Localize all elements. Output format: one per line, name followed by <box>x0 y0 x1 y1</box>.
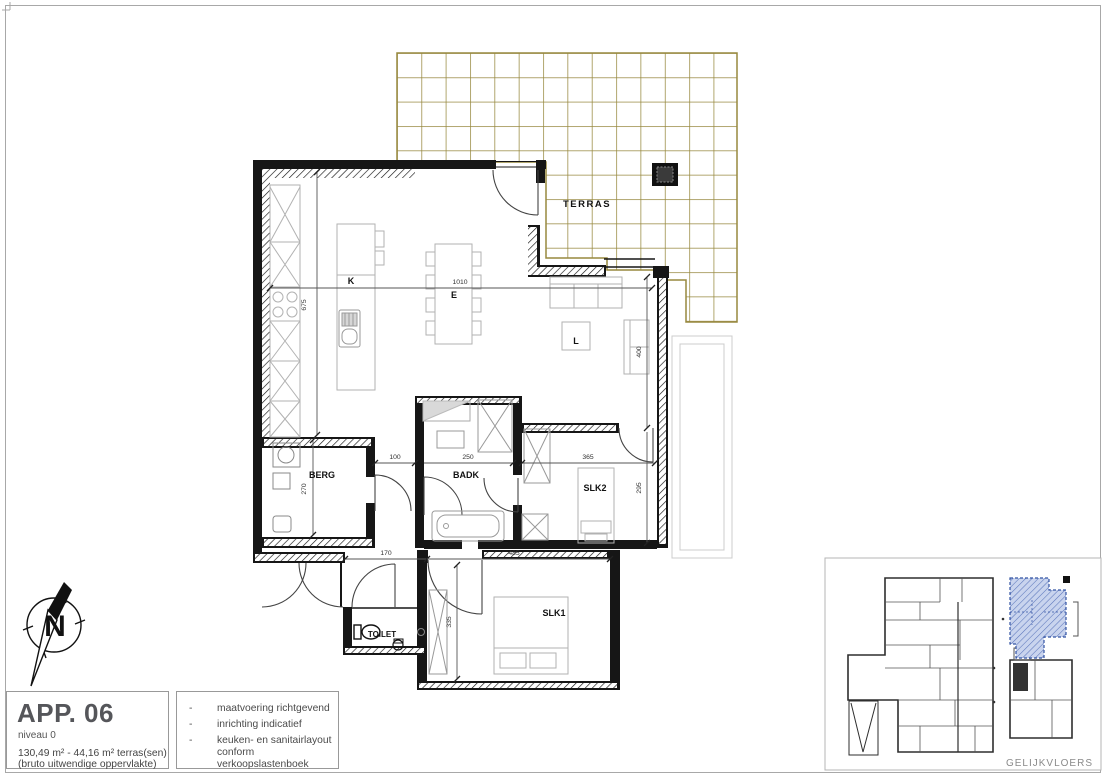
dim-living-right: 400 <box>636 346 643 358</box>
drawing-sheet: TERRAS <box>0 0 1106 779</box>
slk1-door <box>428 560 482 614</box>
toilet-door <box>352 564 395 607</box>
room-label-living: L <box>573 336 579 346</box>
note-item: - keuken- en sanitairlayout conform verk… <box>189 735 338 771</box>
room-label-terrace: TERRAS <box>563 199 611 210</box>
dim-bedroom2-right: 295 <box>636 482 643 494</box>
north-label: N <box>44 610 66 643</box>
badk-door <box>424 477 462 515</box>
neighbour-outline <box>672 336 732 558</box>
dim-living-width: 1010 <box>452 279 467 286</box>
dim-hall-width: 100 <box>389 454 401 461</box>
floor-plan-svg: TERRAS <box>0 0 1106 779</box>
apartment-title: APP. 06 <box>17 698 168 729</box>
notes-block: - maatvoering richtgevend - inrichting i… <box>176 691 339 769</box>
dim-storage-height: 270 <box>301 483 308 495</box>
terrace-tiles <box>397 53 737 322</box>
note-item: - maatvoering richtgevend <box>189 703 338 715</box>
room-label-bedroom1: SLK1 <box>542 608 565 618</box>
level-label: niveau 0 <box>18 730 168 741</box>
room-label-bedroom2: SLK2 <box>583 483 606 493</box>
dim-bedroom1-height: 335 <box>446 616 453 628</box>
dim-entry-width: 170 <box>380 550 392 557</box>
title-block: APP. 06 niveau 0 130,49 m² - 44,16 m² te… <box>6 691 169 769</box>
room-label-toilet: TOILET <box>368 630 396 639</box>
room-label-kitchen: K <box>348 276 355 286</box>
north-arrow: N <box>23 582 85 686</box>
room-label-bathroom: BADK <box>453 470 479 480</box>
berg-door <box>375 475 411 511</box>
keyplan-caption: GELIJKVLOERS <box>1006 758 1093 769</box>
dim-bathroom-width: 250 <box>462 454 474 461</box>
dim-kitchen-height: 675 <box>301 299 308 311</box>
room-label-storage: BERG <box>309 470 335 480</box>
terrace-door <box>493 170 538 215</box>
note-item: - inrichting indicatief <box>189 719 338 731</box>
area-line: 130,49 m² - 44,16 m² terras(sen) <box>18 748 168 759</box>
dim-bedroom2-width: 365 <box>582 454 594 461</box>
room-label-dining: E <box>451 290 457 300</box>
dim-bedroom1-width: 485 <box>508 550 520 557</box>
slk2-hall-door <box>484 478 518 512</box>
terrace: TERRAS <box>397 53 737 322</box>
keyplan: GELIJKVLOERS <box>825 558 1101 770</box>
slk2-living-door <box>619 428 653 462</box>
area-note: (bruto uitwendige oppervlakte) <box>18 759 168 770</box>
